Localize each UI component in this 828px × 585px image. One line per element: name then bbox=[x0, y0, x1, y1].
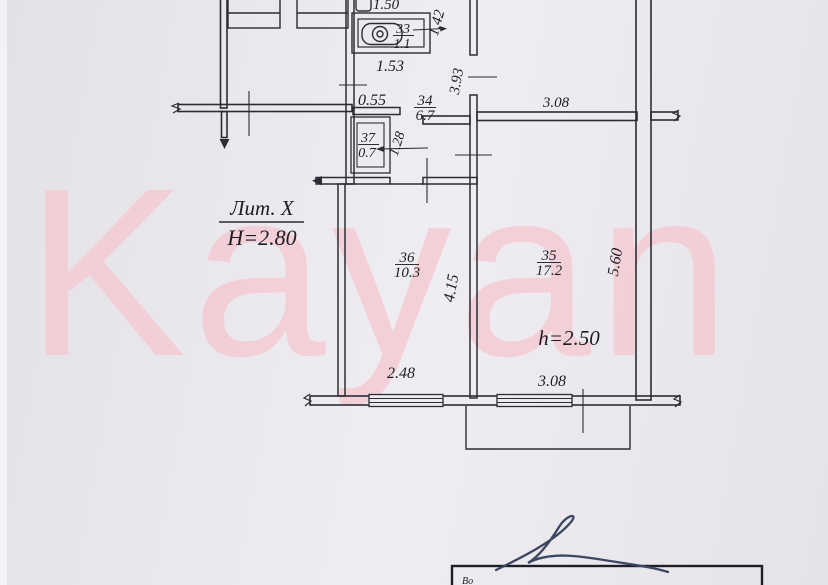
wall-room36-left bbox=[338, 184, 345, 396]
dim-bath-width: 1.50 bbox=[373, 0, 400, 13]
window-room35 bbox=[497, 395, 572, 407]
balcony-outline bbox=[466, 406, 630, 449]
dim-room35-depth: 5.60 bbox=[605, 247, 627, 278]
entrance-wall-stub bbox=[222, 112, 228, 138]
direction-arrows bbox=[220, 26, 448, 185]
dim-bath-niche: 1.42 bbox=[426, 8, 448, 38]
dim-room36-depth: 4.15 bbox=[441, 273, 463, 304]
sink-icon bbox=[356, 0, 371, 11]
wall-left bbox=[221, 0, 228, 108]
dim-upper-room-width: 3.08 bbox=[542, 95, 570, 111]
dim-hall-step: 0.55 bbox=[358, 92, 386, 109]
room-34-number: 34 bbox=[417, 93, 434, 109]
litera-label: Лит. X bbox=[229, 196, 295, 220]
room-37-area: 0.7 bbox=[358, 146, 377, 161]
break-symbols bbox=[172, 103, 681, 407]
stamp-text: Во bbox=[462, 576, 473, 585]
wardrobes bbox=[228, 0, 348, 28]
wall-room36-top-left bbox=[316, 178, 390, 185]
scanned-floor-plan-page: Kayan bbox=[0, 0, 828, 585]
dimension-ticks bbox=[249, 77, 583, 433]
dim-corridor-width: 1.53 bbox=[376, 58, 404, 75]
wall-bottom bbox=[310, 396, 680, 405]
entrance-arrow bbox=[220, 139, 230, 149]
room-35-number: 35 bbox=[541, 248, 558, 264]
room-37-number: 37 bbox=[360, 131, 376, 146]
window-room36 bbox=[369, 395, 443, 407]
wall-right bbox=[636, 0, 651, 400]
wall-hall-right-upper bbox=[470, 0, 477, 55]
room-35-area: 17.2 bbox=[536, 263, 563, 279]
wall-room36-top-right bbox=[423, 178, 477, 185]
wall-top-left bbox=[178, 105, 352, 112]
ceiling-height-label: h=2.50 bbox=[538, 326, 600, 350]
dim-room36-width: 2.48 bbox=[387, 365, 415, 382]
dim-room35-width: 3.08 bbox=[537, 373, 566, 390]
wall-rooms-divider bbox=[470, 95, 477, 398]
handwritten-signature bbox=[496, 516, 668, 572]
room-33-area: 1.1 bbox=[394, 36, 411, 51]
wall-mid-b bbox=[477, 112, 637, 121]
room-36-number: 36 bbox=[399, 250, 416, 266]
room-36-area: 10.3 bbox=[394, 265, 420, 281]
floor-plan-drawing: 1.50 1.42 1.53 0.55 3.93 3.08 1.28 4.15 … bbox=[0, 0, 828, 585]
dim-hall-depth: 3.93 bbox=[447, 67, 467, 97]
room-33-number: 33 bbox=[395, 22, 410, 37]
room-34-area: 6.7 bbox=[416, 108, 436, 124]
building-height-label: H=2.80 bbox=[226, 225, 296, 250]
